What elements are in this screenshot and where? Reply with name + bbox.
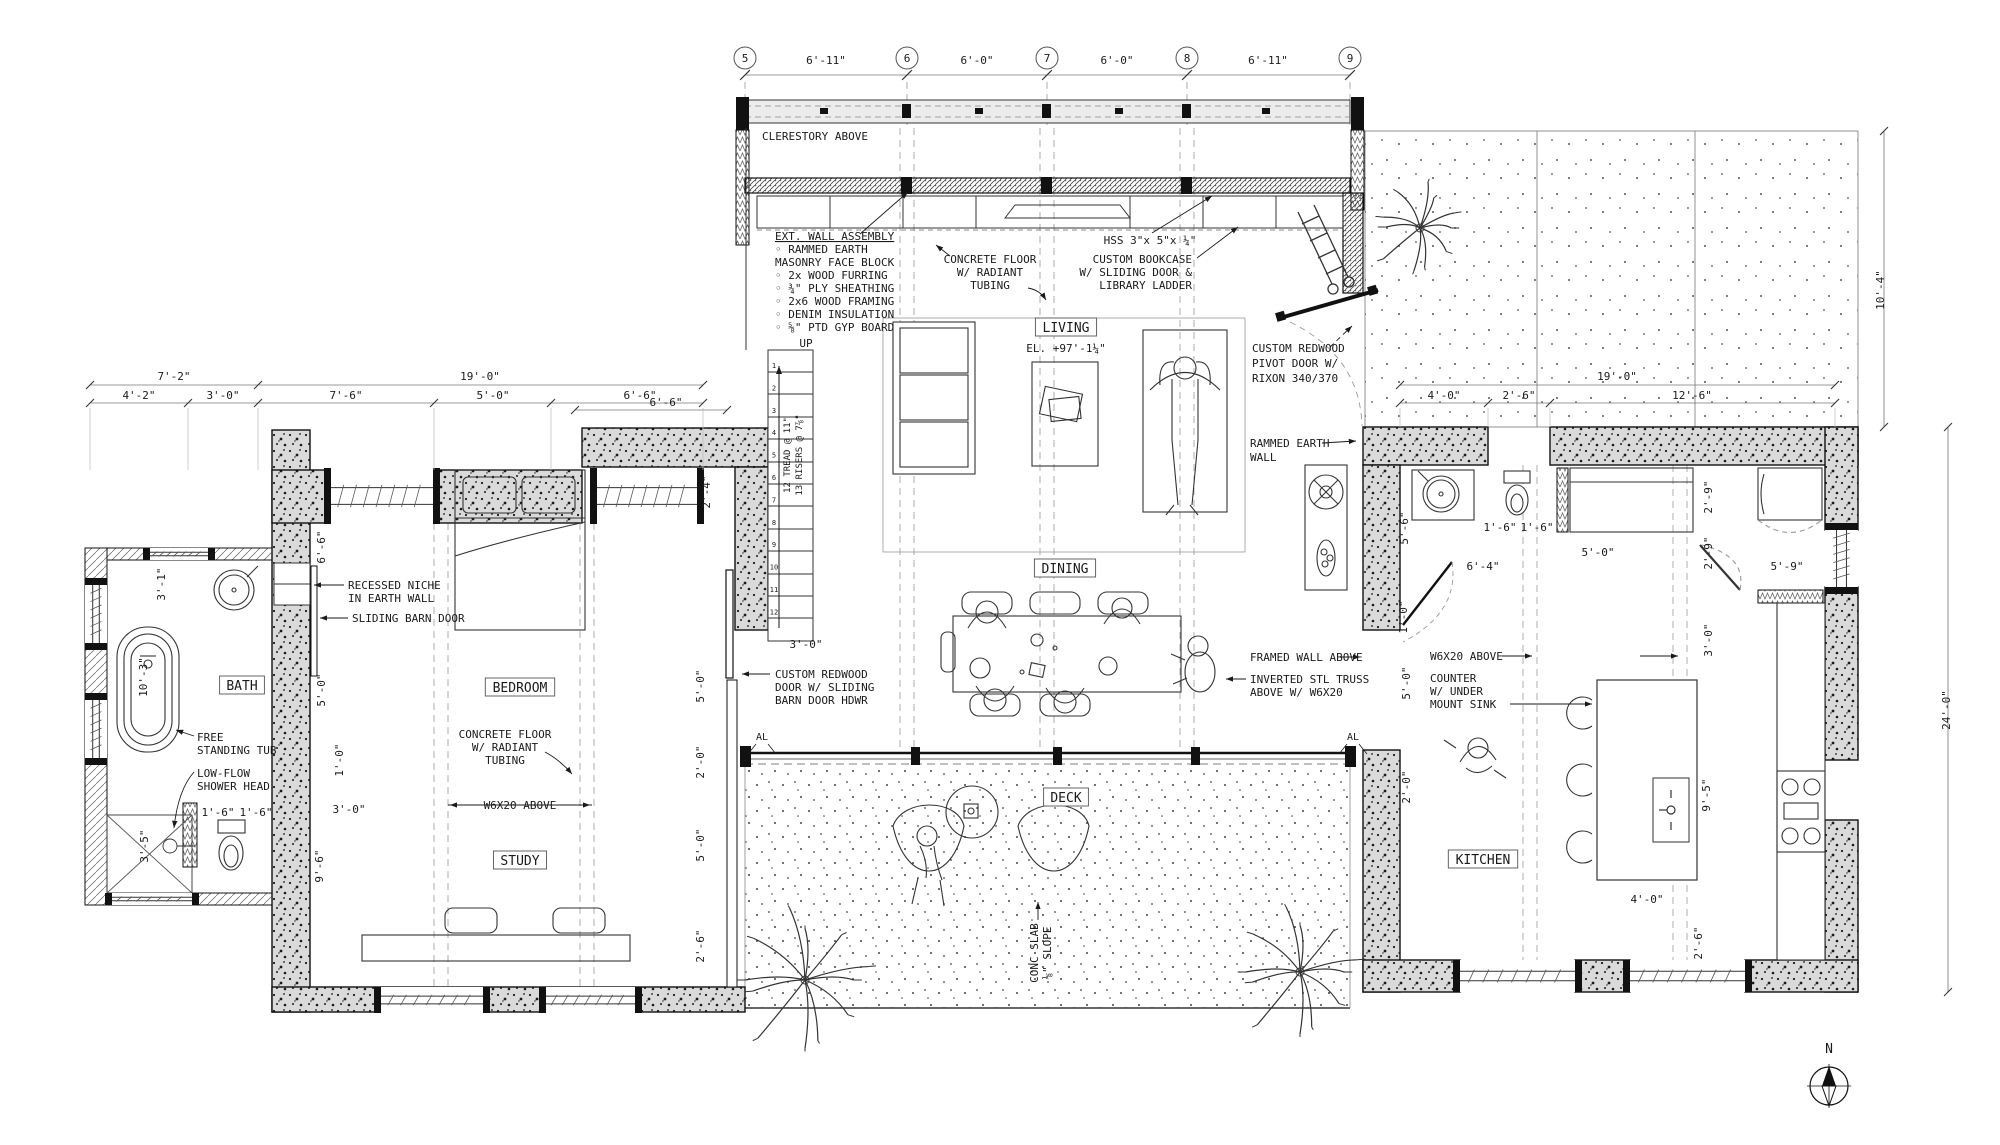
w6x20-kitchen-line-0: W6X20 ABOVE (1430, 650, 1503, 663)
dim-kitchen-west-2: 5'-0" (1400, 666, 1413, 699)
window (324, 468, 440, 524)
counter-note-line-0: COUNTER (1430, 672, 1477, 685)
free-standing-tub-note-line-0: FREE (197, 731, 224, 744)
dim-bedroom-east-1: 5'-0" (694, 669, 707, 702)
stair-tread-10: 10 (770, 564, 778, 572)
room-label-bedroom: BEDROOM (493, 681, 548, 696)
dim-left-2: 3'-0" (206, 389, 239, 402)
dining-people (968, 598, 1215, 713)
dim-pantry-2: 2'-9" (1702, 536, 1715, 569)
kitchen-closet (1570, 468, 1741, 590)
stair-tread-8: 8 (772, 519, 776, 527)
kitchen-island (1597, 680, 1697, 880)
ext-wall-assembly-line-5: ◦ 2x6 WOOD FRAMING (775, 295, 894, 308)
stair-tread-3: 3 (772, 407, 776, 415)
ext-wall-assembly-line-3: ◦ 2x WOOD FURRING (775, 269, 888, 282)
floor-plan-sheet: 567896'-11"6'-0"6'-0"6'-11"7'-2"19'-0"4'… (0, 0, 2000, 1145)
grid-bubble-label-7: 7 (1044, 52, 1051, 65)
dim-kitchen-west-3: 2'-0" (1400, 770, 1413, 803)
stair-tread-9: 9 (772, 541, 776, 549)
dim-kitchen-west-1: 1'-0" (1397, 600, 1410, 633)
window (1623, 960, 1752, 992)
grid-bubble-label-6: 6 (904, 52, 911, 65)
clerestory-above-line-0: CLERESTORY ABOVE (762, 130, 868, 143)
low-flow-note-line-1: SHOWER HEAD (197, 780, 270, 793)
ext-wall-assembly-line-0: EXT. WALL ASSEMBLY (775, 230, 895, 243)
powder-toilet (1504, 471, 1530, 515)
dim-bath-wall: 1'-0" (333, 743, 346, 776)
dim-tub: 10'-3" (137, 657, 150, 697)
living-elevation-line-0: EL. +97'-1¼" (1026, 342, 1105, 355)
pivot-door (1275, 285, 1378, 426)
window (143, 548, 215, 560)
dim-island-clear: 3'-0" (1702, 623, 1715, 656)
dim-bedroom-east-2: 2'-0" (694, 745, 707, 778)
conc-slab-note-line-0: CONC SLAB (1028, 923, 1041, 983)
dim-left-bath-total: 7'-2" (157, 370, 190, 383)
ext-wall-assembly-line-7: ◦ ⅝" PTD GYP BOARD (775, 321, 894, 334)
window (85, 578, 107, 650)
dim-pantry-1: 2'-9" (1702, 480, 1715, 513)
dim-stair-window: 2'-4" (700, 475, 713, 508)
room-label-deck: DECK (1050, 791, 1081, 806)
w6x20-study-line-0: W6X20 ABOVE (484, 799, 557, 812)
dim-powder-wc-1: 1'-6" (1483, 521, 1516, 534)
shower (107, 815, 195, 893)
dim-powder-wc-2: 1'-6" (1520, 521, 1553, 534)
al-right-line-0: AL (1347, 732, 1359, 743)
window (539, 987, 642, 1013)
dim-patio-height: 10'-4" (1874, 270, 1887, 310)
inverted-truss-note-line-1: ABOVE W/ W6X20 (1250, 686, 1343, 699)
dim-left-3: 7'-6" (329, 389, 362, 402)
powder-sink (1412, 470, 1474, 520)
recessed-niche-note-line-0: RECESSED NICHE (348, 579, 441, 592)
window (1453, 960, 1582, 992)
floor-plan-canvas: 567896'-11"6'-0"6'-0"6'-11"7'-2"19'-0"4'… (0, 0, 2000, 1145)
al-left-line-0: AL (756, 732, 768, 743)
dim-right-2: 2'-6" (1502, 389, 1535, 402)
concrete-floor-living-line-2: TUBING (970, 279, 1010, 292)
fridge (1758, 468, 1822, 533)
stair-treads-note-line-0: 12 TREAD @ 11" (783, 417, 793, 493)
bath-barn-door (311, 566, 317, 676)
stair-tread-7: 7 (772, 496, 776, 504)
custom-redwood-door-note-line-1: DOOR W/ SLIDING (775, 681, 874, 694)
study-desk (362, 908, 630, 961)
room-label-dining: DINING (1042, 562, 1089, 577)
dim-island-end: 2'-6" (1692, 926, 1705, 959)
concrete-floor-study-line-2: TUBING (485, 754, 525, 767)
dim-island-length: 9'-5" (1700, 778, 1713, 811)
hss-note-line-0: HSS 3"x 5"x ¼" (1104, 234, 1197, 247)
stair-tread-4: 4 (772, 429, 776, 437)
dim-closet: 6'-6" (315, 530, 328, 563)
grid-bubble-label-9: 9 (1347, 52, 1354, 65)
ext-wall-assembly-line-6: ◦ DENIM INSULATION (775, 308, 894, 321)
entry-sliding-door (726, 570, 733, 678)
compass-icon (1807, 1064, 1851, 1108)
dim-kitchen-wing-height: 24'-0" (1940, 690, 1953, 730)
rammed-earth-wall-note-line-1: WALL (1250, 451, 1277, 464)
low-flow-note-line-0: LOW-FLOW (197, 767, 250, 780)
dim-shower: 3'-5" (138, 829, 151, 862)
concrete-floor-study-line-1: W/ RADIANT (472, 741, 539, 754)
grid-bubble-label-5: 5 (742, 52, 749, 65)
dim-bedroom-east-4: 2'-6" (694, 929, 707, 962)
dim-kitchen-window: 5'-9" (1770, 560, 1803, 573)
custom-redwood-door-note-line-0: CUSTOM REDWOOD (775, 668, 868, 681)
inverted-truss-note-line-0: INVERTED STL TRUSS (1250, 673, 1369, 686)
bath-toilet (218, 820, 245, 870)
free-standing-tub-note-line-1: STANDING TUB (197, 744, 277, 757)
counter-note-line-2: MOUNT SINK (1430, 698, 1497, 711)
dim-left-1: 4'-2" (122, 389, 155, 402)
up-label-line-0: UP (799, 337, 813, 350)
window (85, 693, 107, 765)
grid-dim-1: 6'-0" (960, 54, 993, 67)
bath-sink (214, 566, 258, 610)
sliding-barn-door-note-line-0: SLIDING BARN DOOR (352, 612, 465, 625)
stair-tread-1: 1 (772, 362, 776, 370)
ext-wall-assembly-line-4: ◦ ¾" PLY SHEATHING (775, 282, 894, 295)
rammed-earth-wall-note-line-0: RAMMED EARTH (1250, 437, 1329, 450)
custom-bookcase-note-line-1: W/ SLIDING DOOR & (1079, 266, 1192, 279)
conc-slab-note-line-1: ⅛" SLOPE (1041, 927, 1054, 980)
custom-redwood-door-note-line-2: BARN DOOR HDWR (775, 694, 868, 707)
stair-tread-12: 12 (770, 608, 778, 616)
framed-wall-above-note-line-0: FRAMED WALL ABOVE (1250, 651, 1363, 664)
dim-study-door: 3'-0" (332, 803, 365, 816)
recessed-niche-note-line-1: IN EARTH WALL (348, 592, 434, 605)
dim-kitchen-door: 6'-4" (1466, 560, 1499, 573)
stair-tread-6: 6 (772, 474, 776, 482)
window (105, 893, 199, 905)
window (374, 987, 490, 1013)
grid-dim-2: 6'-0" (1100, 54, 1133, 67)
concrete-floor-study-line-0: CONCRETE FLOOR (459, 728, 552, 741)
ext-wall-assembly-line-2: MASONRY FACE BLOCK (775, 256, 895, 269)
custom-bookcase-note-line-2: LIBRARY LADDER (1099, 279, 1192, 292)
kitchen-person (1444, 738, 1506, 778)
dim-right-total: 19'-0" (1597, 370, 1637, 383)
grid-dim-3: 6'-11" (1248, 54, 1288, 67)
dining-table (941, 592, 1181, 716)
sofa (893, 322, 975, 474)
grid-bubble-label-8: 8 (1184, 52, 1191, 65)
ext-wall-assembly-line-1: ◦ RAMMED EARTH (775, 243, 868, 256)
dim-right-3: 12'-6" (1672, 389, 1712, 402)
room-label-study: STUDY (500, 854, 539, 869)
dim-left-wing-total: 19'-0" (460, 370, 500, 383)
dim-entry: 6'-6" (649, 396, 682, 409)
dim-wc-1: 1'-6" (201, 806, 234, 819)
dim-study-wall: 9'-6" (313, 849, 326, 882)
stair-risers-note-line-0: 13 RISERS @ 7⅞" (795, 414, 805, 495)
dim-bedroom-east-3: 5'-0" (694, 828, 707, 861)
dim-powder-depth: 5'-6" (1398, 511, 1411, 544)
custom-bookcase (757, 196, 1343, 230)
concrete-floor-living-line-1: W/ RADIANT (957, 266, 1024, 279)
pivot-door-note-line-1: PIVOT DOOR W/ (1252, 357, 1338, 370)
stair-tread-5: 5 (772, 452, 776, 460)
dim-island-width: 4'-0" (1630, 893, 1663, 906)
custom-bookcase-note-line-0: CUSTOM BOOKCASE (1093, 253, 1192, 266)
grid-dim-0: 6'-11" (806, 54, 846, 67)
compass-n-label: N (1825, 1042, 1833, 1057)
pivot-door-note-line-2: RIXON 340/370 (1252, 372, 1338, 385)
concrete-floor-living-line-0: CONCRETE FLOOR (944, 253, 1037, 266)
room-label-kitchen: KITCHEN (1456, 853, 1511, 868)
island-stools (1567, 697, 1592, 863)
dim-right-1: 4'-0" (1427, 389, 1460, 402)
stair-tread-2: 2 (772, 384, 776, 392)
window (1825, 523, 1858, 594)
dim-bath-vanity: 3'-1" (155, 567, 168, 600)
dim-closet-width: 5'-0" (1581, 546, 1614, 559)
kitchen-west-door (1403, 562, 1453, 642)
counter-note-line-1: W/ UNDER (1430, 685, 1483, 698)
dim-bath-door: 5'-0" (315, 673, 328, 706)
stair-tread-11: 11 (770, 586, 778, 594)
dim-left-4: 5'-0" (476, 389, 509, 402)
mech-closet (1305, 465, 1347, 590)
dim-stair-door: 3'-0" (789, 638, 822, 651)
dim-wc-2: 1'-6" (239, 806, 272, 819)
window (590, 468, 704, 524)
pivot-door-note-line-0: CUSTOM REDWOOD (1252, 342, 1345, 355)
daybed-person (1143, 330, 1227, 515)
room-label-living: LIVING (1043, 321, 1090, 336)
room-label-bath: BATH (226, 679, 257, 694)
coffee-table (1032, 362, 1098, 466)
